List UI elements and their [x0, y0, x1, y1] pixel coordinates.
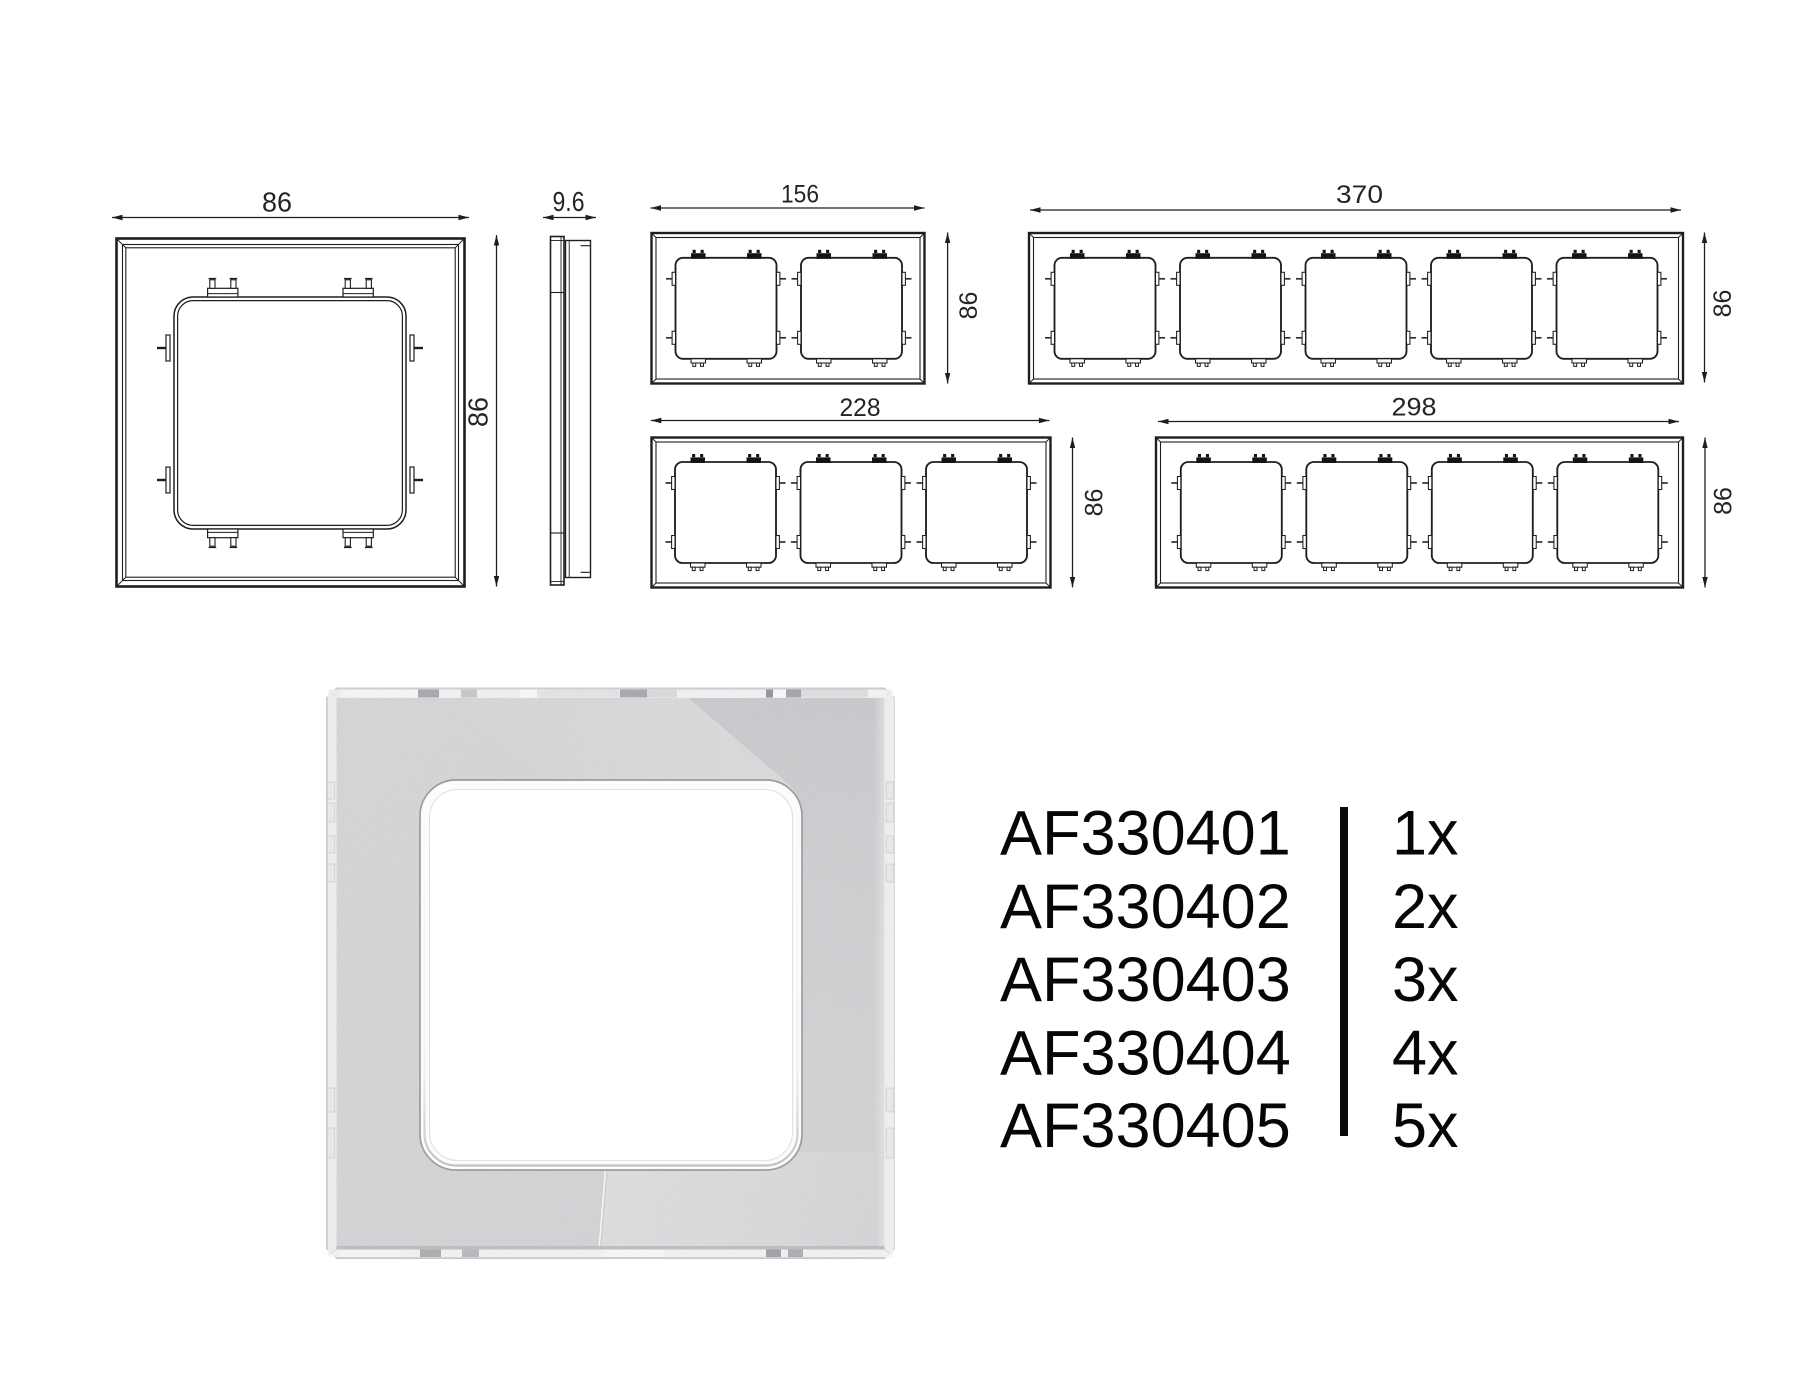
svg-text:86: 86 [955, 292, 983, 320]
svg-text:5x: 5x [1392, 1091, 1459, 1161]
svg-text:86: 86 [262, 187, 292, 218]
svg-text:4x: 4x [1392, 1019, 1459, 1089]
svg-text:86: 86 [1081, 489, 1109, 517]
svg-text:AF330405: AF330405 [1000, 1091, 1291, 1161]
svg-text:AF330404: AF330404 [1000, 1019, 1291, 1089]
svg-text:AF330403: AF330403 [1000, 945, 1291, 1015]
svg-text:AF330401: AF330401 [1000, 799, 1291, 869]
svg-text:298: 298 [1392, 394, 1437, 422]
svg-text:86: 86 [1709, 290, 1737, 318]
svg-text:86: 86 [463, 397, 494, 427]
svg-text:3x: 3x [1392, 945, 1459, 1015]
svg-text:1x: 1x [1392, 799, 1459, 869]
svg-text:228: 228 [840, 394, 881, 422]
svg-text:86: 86 [1710, 487, 1738, 515]
svg-text:156: 156 [781, 181, 819, 209]
svg-text:AF330402: AF330402 [1000, 872, 1291, 942]
svg-text:2x: 2x [1392, 872, 1459, 942]
svg-text:9.6: 9.6 [553, 186, 585, 217]
svg-text:370: 370 [1336, 181, 1383, 209]
